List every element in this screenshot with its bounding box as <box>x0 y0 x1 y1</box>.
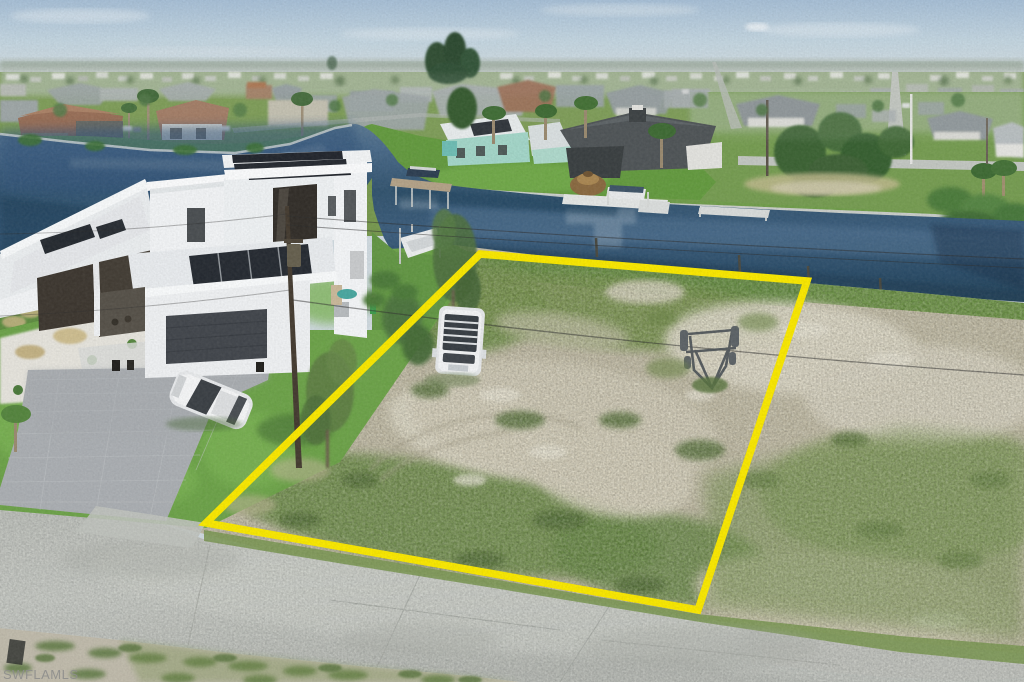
svg-text:SWFLAMLS: SWFLAMLS <box>3 667 79 682</box>
